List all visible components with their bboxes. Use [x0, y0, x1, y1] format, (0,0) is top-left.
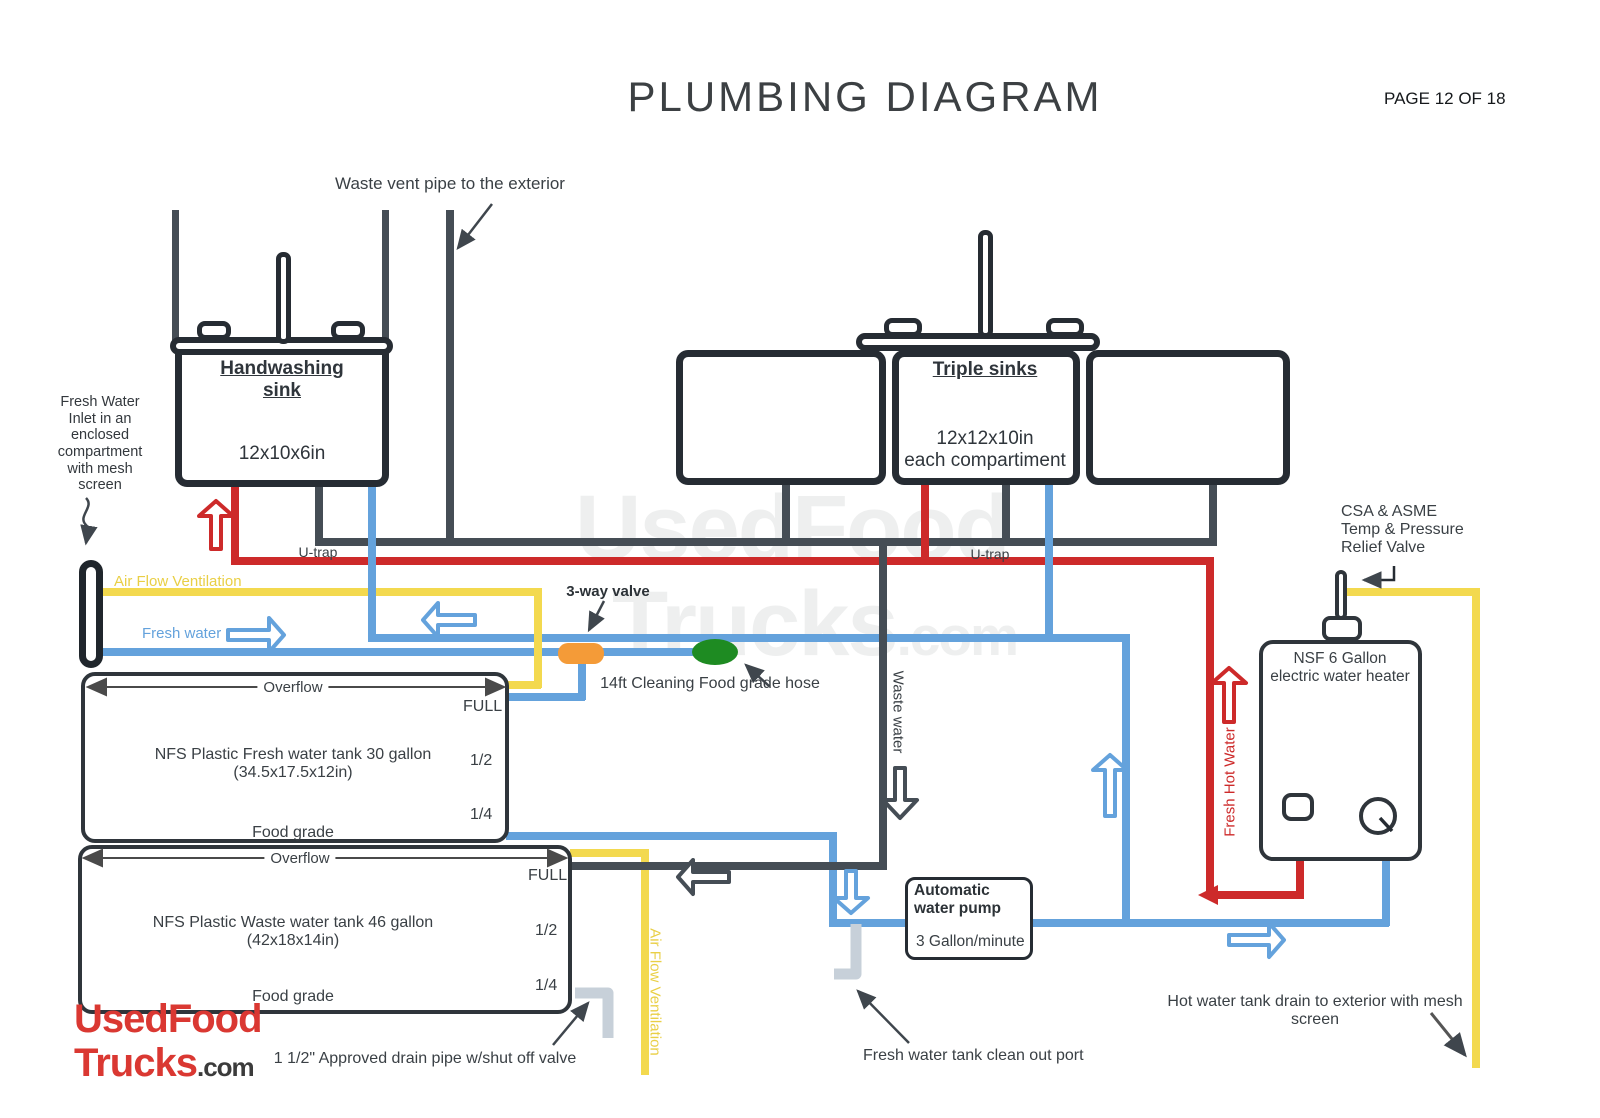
fresh-tank-full: FULL — [463, 698, 502, 716]
clean-out-label: Fresh water tank clean out port — [863, 1047, 1084, 1065]
air-flow-vertical-label: Air Flow Ventilation — [646, 928, 663, 1056]
fresh-tank-grade: Food grade — [252, 824, 334, 842]
waste-tank-name: NFS Plastic Waste water tank 46 gallon(4… — [153, 914, 433, 951]
waste-down-arrow — [883, 768, 917, 818]
fresh-hot-water-label: Fresh Hot Water — [1221, 727, 1238, 836]
hot-drain-label: Hot water tank drain to exterior with me… — [1167, 993, 1462, 1030]
fresh-tank-half: 1/2 — [470, 752, 492, 770]
drain-pipe-shape — [575, 993, 608, 1038]
pump-rate: 3 Gallon/minute — [916, 933, 1025, 951]
triple-sinks-dims: 12x12x10ineach compartiment — [904, 428, 1066, 472]
waste-tank-half: 1/2 — [535, 922, 557, 940]
fresh-tank-overflow: Overflow — [257, 679, 328, 696]
hot-out-arrowhead — [1198, 885, 1218, 905]
waste-tank-grade: Food grade — [252, 988, 334, 1006]
waste-tank-overflow: Overflow — [264, 850, 335, 867]
inlet-arrow — [83, 498, 89, 543]
air-flow-label: Air Flow Ventilation — [114, 573, 242, 590]
page-title: PLUMBING DIAGRAM — [627, 73, 1102, 121]
handwashing-dims: 12x10x6in — [239, 443, 326, 465]
fresh-water-label: Fresh water — [142, 625, 221, 642]
page-number: PAGE 12 OF 18 — [1384, 89, 1506, 109]
cold-up-arrow — [1093, 755, 1127, 816]
clean-out-arrow — [858, 991, 909, 1043]
heater-dial-tick — [1380, 818, 1392, 831]
inlet-label: Fresh WaterInlet in an enclosedcompartme… — [58, 394, 143, 494]
handwashing-title: Handwashingsink — [220, 358, 344, 402]
cleaning-hose-label: 14ft Cleaning Food grade hose — [600, 675, 820, 693]
clean-out-pipe — [834, 924, 856, 974]
waste-tank-quarter: 1/4 — [535, 977, 557, 995]
drain-pipe-label: 1 1/2" Approved drain pipe w/shut off va… — [274, 1050, 576, 1068]
three-way-valve-label: 3-way valve — [566, 583, 649, 600]
waste-left-arrow — [678, 860, 729, 894]
pump-right-arrow — [1229, 923, 1284, 957]
fresh-tank-name: NFS Plastic Fresh water tank 30 gallon(3… — [155, 746, 432, 783]
relief-valve-arrow — [1364, 566, 1394, 580]
waste-water-label: Waste water — [889, 671, 906, 754]
pump-title: Automaticwater pump — [914, 882, 1001, 918]
logo-line2: Trucks.com — [74, 1041, 262, 1085]
relief-valve-label: CSA & ASMETemp & PressureRelief Valve — [1341, 503, 1464, 557]
cleaning-hose-port — [692, 639, 738, 665]
three-way-valve-arrow — [589, 601, 604, 630]
three-way-valve-body — [558, 643, 604, 664]
waste-vent-arrow — [458, 204, 492, 248]
cold-left-arrow — [423, 603, 475, 637]
plumbing-diagram-page: UsedFood Trucks.com — [0, 0, 1600, 1118]
u-trap-left-label: U-trap — [299, 544, 338, 560]
drain-pipe-arrow — [553, 1003, 588, 1045]
hot-up-arrow-left — [199, 501, 233, 549]
fresh-tank-quarter: 1/4 — [470, 806, 492, 824]
waste-tank-full: FULL — [528, 867, 567, 885]
cold-down-arrow — [834, 871, 868, 913]
heater-label: NSF 6 Gallonelectric water heater — [1270, 650, 1410, 686]
u-trap-right-label: U-trap — [971, 546, 1010, 562]
fresh-right-arrow — [228, 618, 284, 652]
hot-up-arrow-right — [1212, 668, 1246, 722]
triple-sinks-title: Triple sinks — [933, 359, 1038, 381]
waste-vent-label: Waste vent pipe to the exterior — [335, 174, 565, 194]
logo-line1: UsedFood — [74, 997, 262, 1041]
usedfoodtrucks-logo: UsedFood Trucks.com — [74, 997, 262, 1085]
